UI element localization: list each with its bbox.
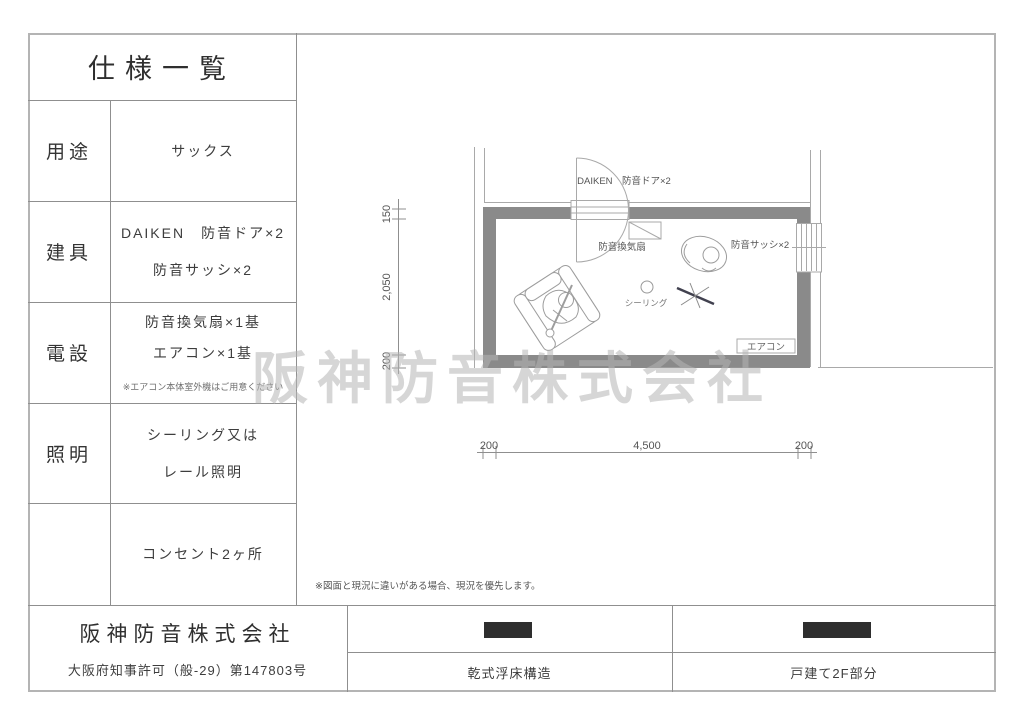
row-label-use: 用途 [46, 137, 92, 164]
row-value-lighting-1: シーリング又は [147, 425, 259, 445]
row-value-use: サックス [171, 141, 235, 161]
company-name: 阪神防音株式会社 [80, 618, 296, 648]
row-value-fittings-2: 防音サッシ×2 [153, 260, 253, 280]
row-value-fittings-1: DAIKEN 防音ドア×2 [121, 223, 285, 243]
row-label-electrical: 電設 [46, 339, 92, 366]
row-value-lighting-2: レール照明 [163, 462, 243, 482]
redacted-block-left [484, 622, 532, 638]
sheet-title: 仕様一覧 [88, 47, 236, 86]
location-label: 戸建て2F部分 [790, 663, 877, 682]
redacted-block-right [803, 622, 871, 638]
license-number: 大阪府知事許可（般-29）第147803号 [68, 660, 307, 679]
row-value-electrical-2: エアコン×1基 [153, 343, 253, 363]
row-value-electrical-1: 防音換気扇×1基 [145, 312, 261, 332]
construction-type-label: 乾式浮床構造 [467, 663, 551, 682]
row-note-electrical: ※エアコン本体室外機はご用意ください [123, 380, 284, 393]
row-value-outlets: コンセント2ヶ所 [142, 544, 264, 564]
spec-sheet: DAIKEN 防音ドア×2 防音換気扇 防音サッシ×2 シーリング [0, 0, 1024, 724]
row-label-lighting: 照明 [46, 440, 92, 467]
row-label-fittings: 建具 [46, 238, 92, 265]
table-line [296, 33, 297, 605]
